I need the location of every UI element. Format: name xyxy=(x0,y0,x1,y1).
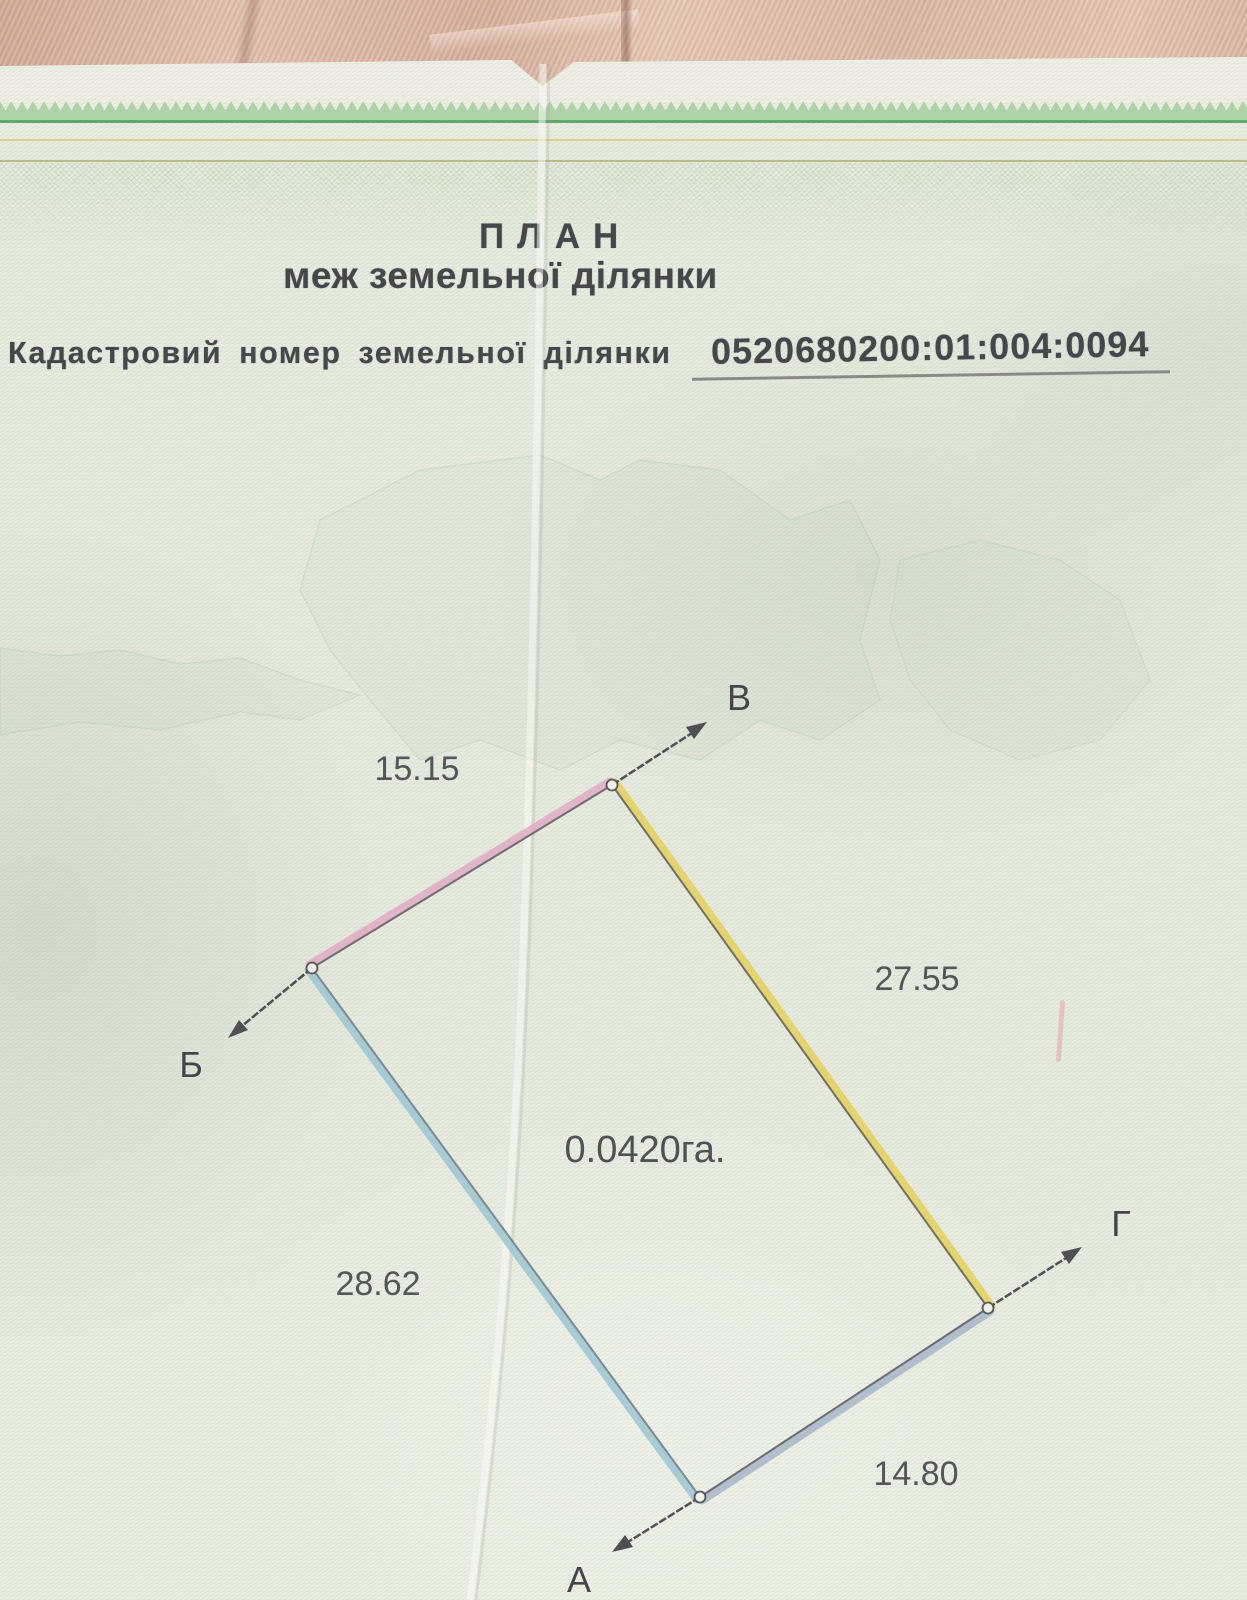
corner-label-v: В xyxy=(727,677,751,718)
direction-arrow-g xyxy=(988,1258,1066,1308)
side-length-b-v: 15.15 xyxy=(374,750,459,788)
vertex-point-g xyxy=(983,1303,994,1314)
corner-label-a: А xyxy=(567,1559,591,1600)
plan-diagram: В Б А Г 15.15 27.55 28.62 14.80 0.0420га… xyxy=(0,0,1247,1600)
watermark-cloud-2 xyxy=(0,648,360,735)
direction-arrow-b xyxy=(242,968,312,1026)
boundary-line-v-g xyxy=(612,785,988,1308)
boundary-line-b-a xyxy=(312,968,700,1497)
watermark-cloud-3 xyxy=(890,540,1150,760)
corner-label-b: Б xyxy=(179,1044,203,1085)
vertex-point-a xyxy=(695,1492,706,1503)
side-length-a-g: 14.80 xyxy=(873,1455,958,1493)
direction-arrowhead-g xyxy=(1061,1247,1082,1264)
direction-arrow-a xyxy=(628,1497,700,1542)
boundary-line-b-v xyxy=(312,785,612,968)
direction-arrowhead-a xyxy=(612,1535,633,1552)
corner-label-g: Г xyxy=(1111,1203,1131,1244)
boundary-side-b-v xyxy=(310,782,610,965)
watermark-cloud-1 xyxy=(300,455,880,770)
boundary-side-b-a xyxy=(309,970,697,1499)
photo-of-cadastral-plan-document: { "page": { "title_line1": "ПЛАН", "titl… xyxy=(0,0,1247,1600)
boundary-side-v-g xyxy=(615,783,991,1306)
area-label: 0.0420га. xyxy=(565,1129,726,1171)
side-length-v-g: 27.55 xyxy=(874,960,959,998)
side-length-b-a: 28.62 xyxy=(335,1265,420,1303)
vertex-point-v xyxy=(607,780,618,791)
vertex-point-b xyxy=(307,963,318,974)
